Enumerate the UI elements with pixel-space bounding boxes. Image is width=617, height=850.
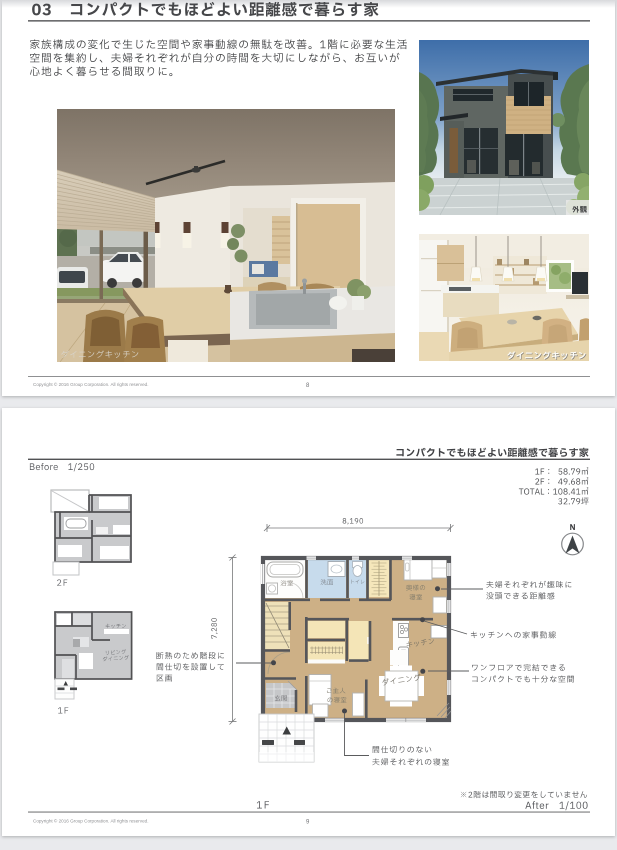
svg-text:8: 8 <box>306 383 310 389</box>
svg-text:Copyright © 2016 Group Corpor: Copyright © 2016 Group Corporation. All … <box>33 381 148 387</box>
svg-text:9: 9 <box>306 820 310 826</box>
svg-text:Copyright © 2016 Group Corpor: Copyright © 2016 Group Corporation. All … <box>33 818 148 824</box>
